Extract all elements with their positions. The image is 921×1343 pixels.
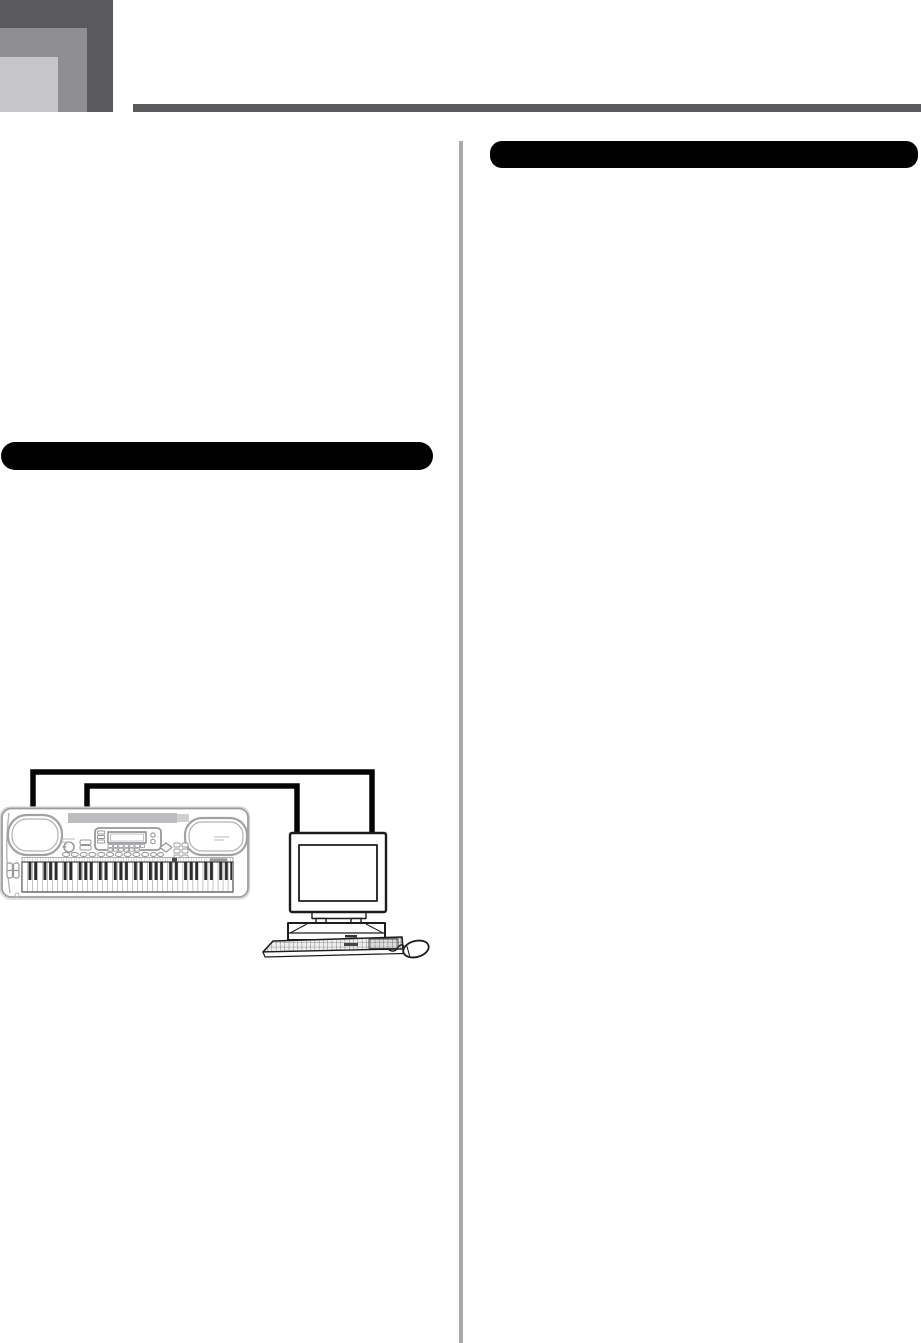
- section-heading-bar-right: [490, 141, 918, 168]
- piano-keys: [22, 862, 233, 892]
- manual-page: [0, 0, 921, 1343]
- monitor-screen: [299, 845, 377, 901]
- lcd-console: [95, 828, 161, 851]
- speaker-left-icon: [8, 815, 62, 855]
- crt-monitor-icon: [290, 833, 386, 912]
- logo-square-light-icon: [0, 57, 58, 112]
- music-keyboard: [1, 807, 250, 899]
- button-row: [62, 852, 163, 856]
- pitch-wheels-icon: [7, 863, 19, 878]
- pc-keyboard-icon: [263, 937, 403, 957]
- desktop-computer: [263, 833, 431, 960]
- column-divider: [459, 141, 463, 1343]
- monitor-stand: [312, 913, 366, 924]
- section-heading-bar-left: [1, 442, 433, 470]
- header-rule: [133, 104, 921, 112]
- keyboard-computer-illustration: [0, 755, 435, 967]
- top-strip: [68, 813, 177, 823]
